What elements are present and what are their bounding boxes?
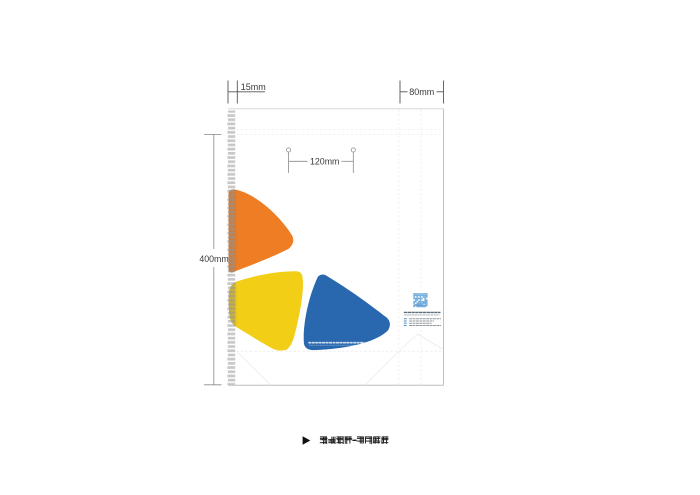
- svg-text:120mm: 120mm: [310, 156, 339, 166]
- svg-text:80mm: 80mm: [409, 87, 434, 97]
- svg-text:15mm: 15mm: [241, 82, 266, 92]
- svg-text:400mm: 400mm: [199, 254, 228, 264]
